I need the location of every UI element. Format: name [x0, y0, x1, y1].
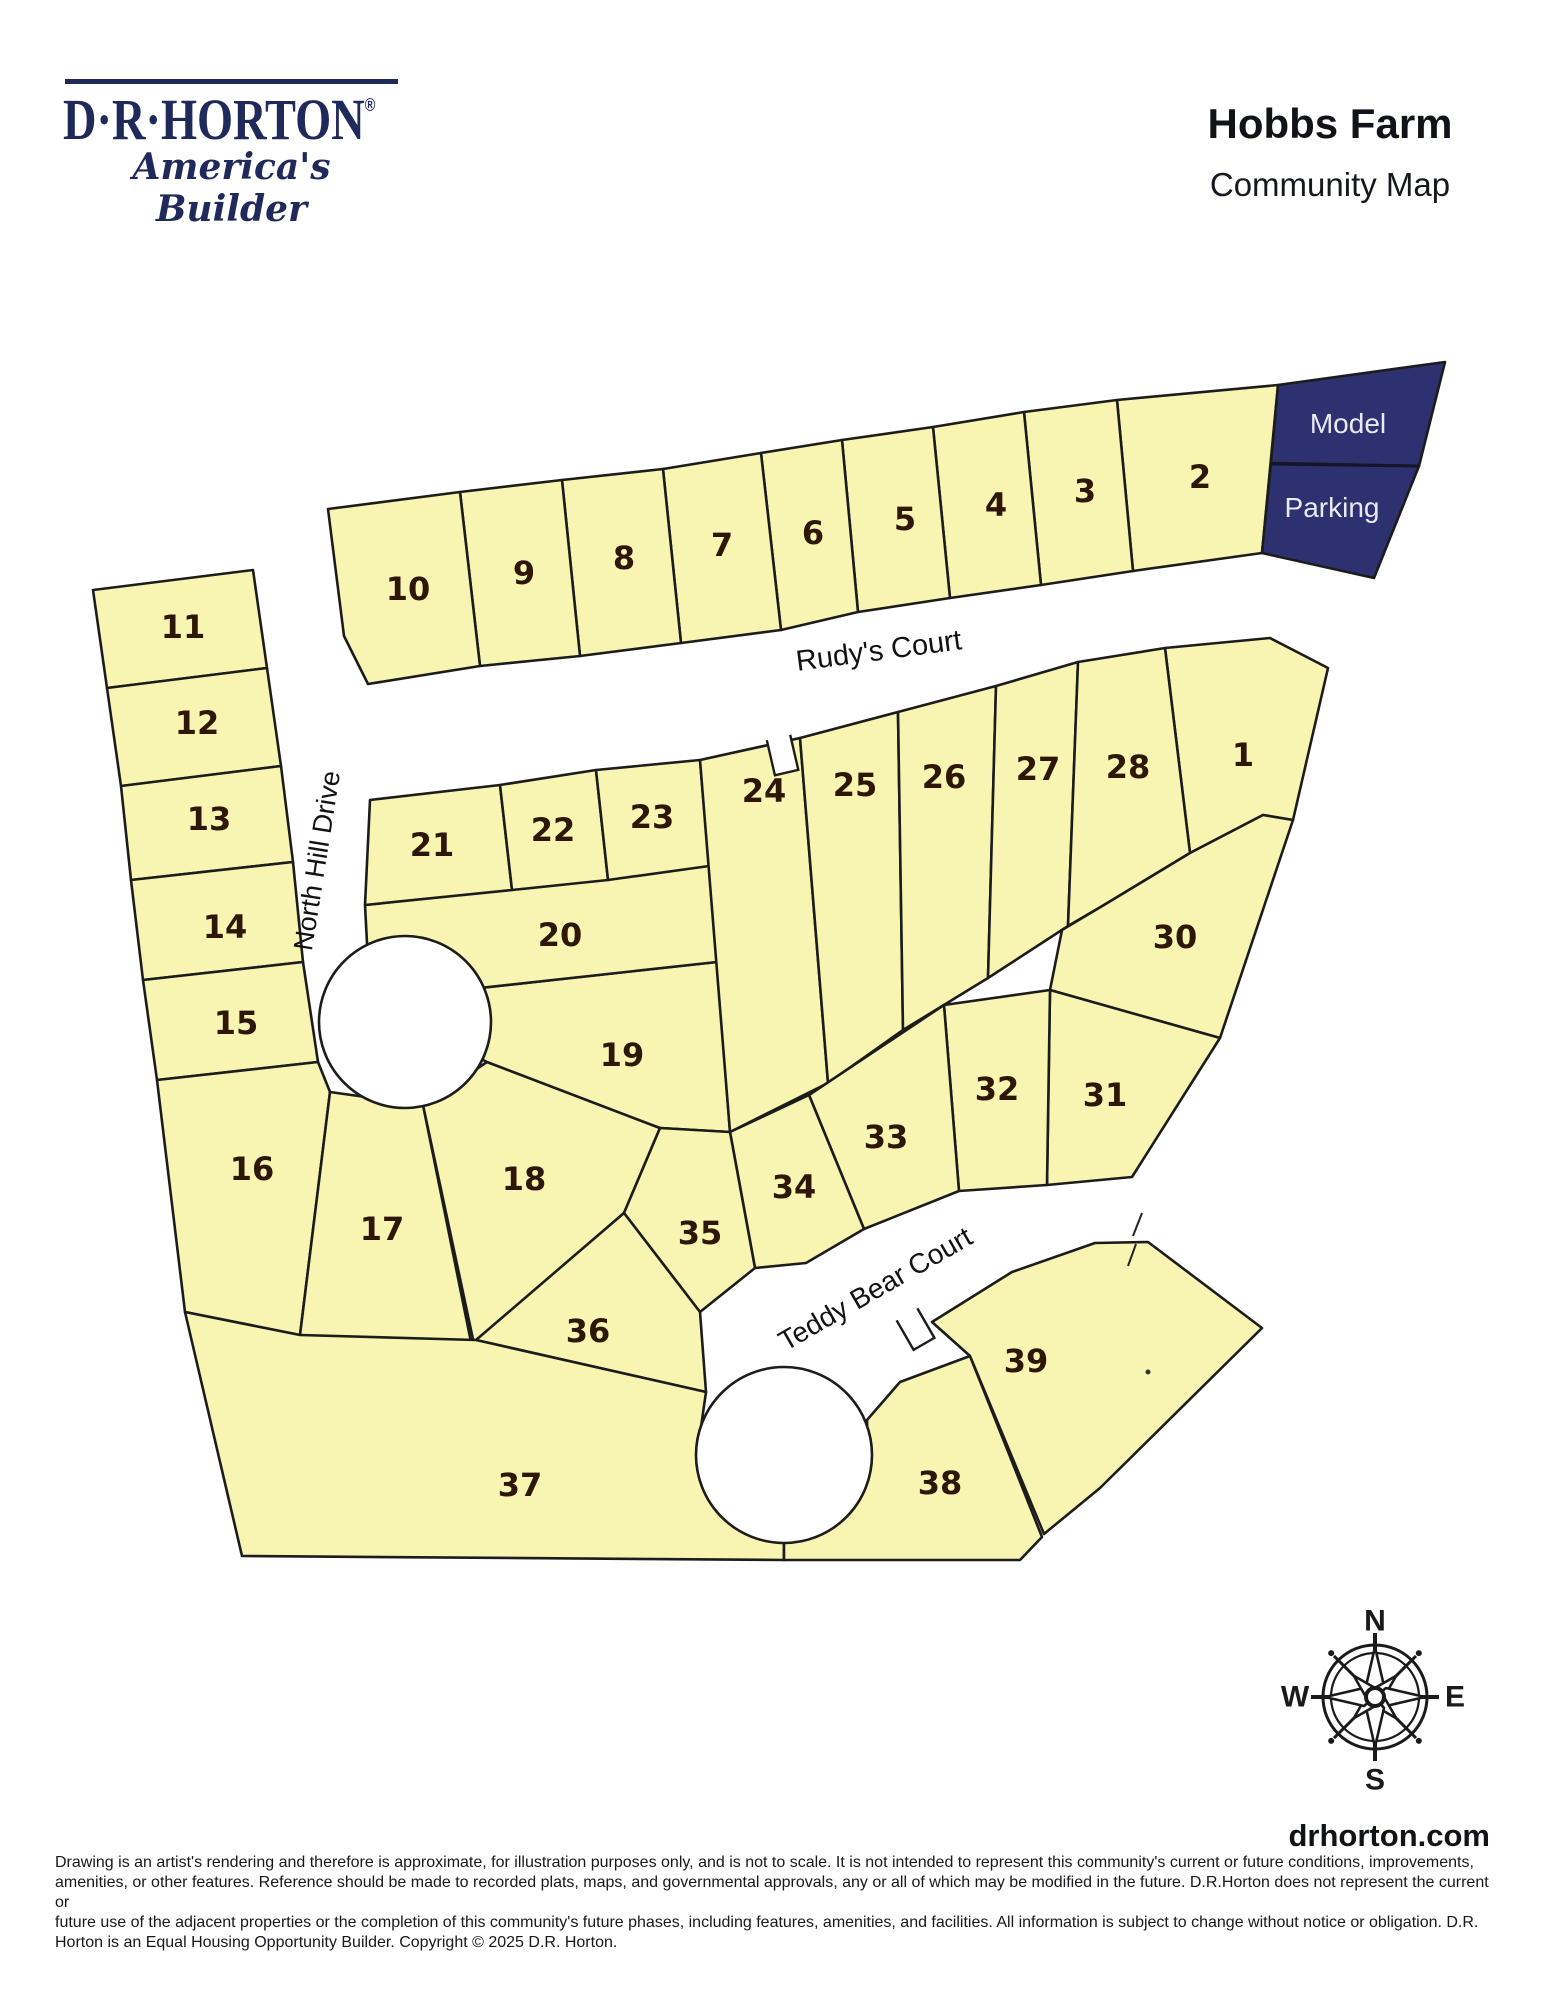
- lot-30-number: 30: [1153, 918, 1198, 956]
- lot-19-number: 19: [600, 1036, 645, 1074]
- map-dot-mark: [1146, 1370, 1151, 1375]
- lot-24-number: 24: [742, 772, 787, 810]
- community-map-page: D·R·HORTON® America's Builder Hobbs Farm…: [0, 0, 1545, 1999]
- disclaimer-line: Drawing is an artist's rendering and the…: [55, 1853, 1493, 1873]
- lot-33-number: 33: [864, 1118, 909, 1156]
- parking-label: Parking: [1285, 492, 1380, 523]
- lot-26-number: 26: [922, 758, 967, 796]
- disclaimer-line: Horton is an Equal Housing Opportunity B…: [55, 1933, 1493, 1953]
- compass-letter-e: E: [1445, 1681, 1465, 1714]
- disclaimer-text: Drawing is an artist's rendering and the…: [55, 1853, 1493, 1953]
- lot-5-number: 5: [894, 500, 916, 538]
- teddy-bear-bulb-cul-de-sac: [696, 1367, 872, 1543]
- lot-1-number: 1: [1232, 736, 1254, 774]
- lot-36-number: 36: [566, 1312, 611, 1350]
- north-hill-bulb-cul-de-sac: [319, 936, 491, 1108]
- community-site-map: 1234567891011121314151617181920212223242…: [0, 0, 1545, 1999]
- compass-letter-w: W: [1281, 1681, 1310, 1714]
- compass-letter-s: S: [1365, 1764, 1385, 1797]
- disclaimer-line: future use of the adjacent properties or…: [55, 1913, 1493, 1933]
- compass-rose-icon: NESW: [1281, 1605, 1465, 1797]
- lot-31-number: 31: [1083, 1076, 1128, 1114]
- lot-2-number: 2: [1189, 458, 1211, 496]
- lot-10-number: 10: [386, 570, 431, 608]
- lot-22-number: 22: [531, 811, 576, 849]
- model-parking-divider: [1271, 464, 1419, 466]
- lot-13-number: 13: [187, 800, 232, 838]
- lot-34-number: 34: [772, 1168, 817, 1206]
- website-link[interactable]: drhorton.com: [1289, 1818, 1491, 1854]
- compass-letter-n: N: [1364, 1605, 1386, 1638]
- lot-4-number: 4: [985, 486, 1007, 524]
- lot-7-number: 7: [711, 526, 733, 564]
- lot-8-number: 8: [613, 539, 635, 577]
- lot-6-number: 6: [802, 514, 824, 552]
- street-label-north-hill-drive: North Hill Drive: [288, 769, 346, 953]
- lot-20-number: 20: [538, 916, 583, 954]
- lot-35-number: 35: [678, 1214, 723, 1252]
- road-continuation-tick: [1133, 1213, 1142, 1236]
- lot-21-number: 21: [410, 826, 455, 864]
- lot-37-number: 37: [498, 1466, 543, 1504]
- lot-18-number: 18: [502, 1160, 547, 1198]
- street-label-rudys-court: Rudy's Court: [794, 624, 963, 677]
- lot-26[interactable]: [898, 686, 996, 1030]
- lot-14-number: 14: [203, 908, 248, 946]
- lot-12-number: 12: [175, 704, 220, 742]
- lot-38-number: 38: [918, 1464, 963, 1502]
- lot-28-number: 28: [1106, 748, 1151, 786]
- lot-9-number: 9: [513, 554, 535, 592]
- lot-25-number: 25: [833, 766, 878, 804]
- lot-23-number: 23: [630, 798, 675, 836]
- lot-11-number: 11: [161, 608, 206, 646]
- teddy-bear-notch: [897, 1308, 935, 1349]
- lot-16-number: 16: [230, 1150, 275, 1188]
- lot-15-number: 15: [214, 1004, 259, 1042]
- lot-32-number: 32: [975, 1070, 1020, 1108]
- lot-17-number: 17: [360, 1210, 405, 1248]
- lot-3-number: 3: [1074, 472, 1096, 510]
- lot-27-number: 27: [1016, 750, 1061, 788]
- lot-39-number: 39: [1004, 1342, 1049, 1380]
- model-label: Model: [1310, 408, 1386, 439]
- disclaimer-line: amenities, or other features. Reference …: [55, 1873, 1493, 1913]
